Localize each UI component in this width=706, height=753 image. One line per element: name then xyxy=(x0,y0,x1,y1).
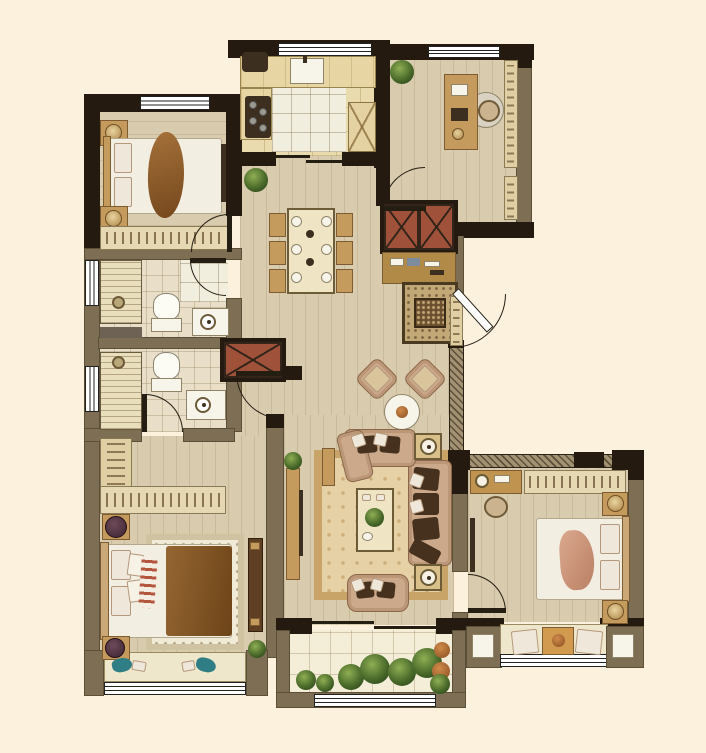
wall-study-right xyxy=(516,44,532,236)
dining-chair-4 xyxy=(336,213,353,237)
bay2-teapot xyxy=(552,634,565,647)
bed1-headboard xyxy=(103,136,111,216)
console-item-1 xyxy=(390,258,404,266)
shower-upper-drain xyxy=(112,296,125,309)
cabinet-living-corner xyxy=(322,448,335,486)
wall-balcony-right xyxy=(452,630,466,696)
bathmat-upper xyxy=(100,327,142,338)
window-study-top xyxy=(428,46,500,58)
bay2-pillow-1 xyxy=(511,629,539,656)
bay2-pillow-2 xyxy=(575,629,603,656)
bed2-pillow-2 xyxy=(600,560,620,590)
plant-master xyxy=(248,640,266,658)
slider-balcony-leaf-2 xyxy=(374,626,436,629)
bench-knob-b xyxy=(250,618,260,626)
bay-master-left-block xyxy=(84,650,104,696)
tv-panel-bedroom2 xyxy=(470,518,475,572)
coffee-item-b xyxy=(376,494,385,501)
coffee-dish xyxy=(362,532,373,541)
desk-paper xyxy=(451,84,468,96)
toilet-lower-bowl xyxy=(153,352,180,380)
bed2-headboard xyxy=(622,516,630,602)
place-setting-6 xyxy=(321,272,332,283)
dining-centerpiece-a xyxy=(306,230,314,238)
bookshelf-study-2 xyxy=(504,176,518,220)
place-setting-3 xyxy=(291,244,302,255)
desk-lamp xyxy=(452,128,464,140)
bed1-pillow-a xyxy=(114,143,132,173)
side-lamp-bottom-dot xyxy=(427,576,431,580)
study-chair xyxy=(478,100,500,122)
wall-left-dark xyxy=(84,94,100,250)
wall-kitchen-bottom-right xyxy=(342,152,390,166)
toilet-lower-tank xyxy=(151,378,182,392)
bay-master-window xyxy=(104,682,246,695)
plant-study xyxy=(390,60,414,84)
tv-cabinet-living xyxy=(286,468,300,580)
window-bath-upper-left xyxy=(85,260,99,306)
shower-lower-drain xyxy=(112,356,125,369)
window-bath-lower-left xyxy=(85,366,99,412)
console-item-2 xyxy=(407,258,420,266)
kitchen-sink xyxy=(290,58,324,84)
plant-corridor xyxy=(284,452,302,470)
bookshelf-study xyxy=(504,60,518,168)
bay2-window xyxy=(500,654,608,667)
wardrobe-master-side xyxy=(100,438,132,488)
dining-chair-1 xyxy=(269,213,286,237)
slider-kitchen-leaf-2 xyxy=(306,160,344,163)
nightstand-bed2-a-top xyxy=(607,495,624,512)
wall-study-step xyxy=(458,222,534,238)
wall-bath-mid xyxy=(98,337,230,349)
coffee-item-a xyxy=(362,494,371,501)
wall-bedroom2-top-dark-mid xyxy=(574,452,604,468)
dresser-items xyxy=(494,475,510,483)
nightstand-bed2-b-top xyxy=(607,603,624,620)
dining-chair-2 xyxy=(269,241,286,265)
dresser-lamp xyxy=(475,474,489,488)
toilet-upper-bowl xyxy=(153,293,180,321)
bed2-pillow-1 xyxy=(600,524,620,554)
console-item-4 xyxy=(430,270,444,275)
side-table-decor xyxy=(396,406,408,418)
kitchen-faucet xyxy=(303,55,307,63)
sofa-top-pillow-2 xyxy=(373,432,388,447)
wall-bedroom2-top-hatch xyxy=(462,454,630,468)
slider-kitchen-leaf-1 xyxy=(274,155,310,158)
master-quilt xyxy=(166,546,232,636)
stove-burner-4 xyxy=(259,124,267,132)
entry-rug-motif xyxy=(414,298,446,328)
place-setting-5 xyxy=(291,272,302,283)
console-item-3 xyxy=(424,261,440,267)
wall-bedroom2-right-dark xyxy=(628,450,644,480)
slider-balcony-leaf-1 xyxy=(312,621,374,624)
balcony-plant-1 xyxy=(296,670,316,690)
balcony-plant-7 xyxy=(430,674,450,694)
window-kitchen-top xyxy=(278,43,372,56)
desk-laptop xyxy=(451,108,468,121)
tv-panel-bedroom1 xyxy=(221,144,226,202)
kitchen-appliance xyxy=(242,52,268,72)
vanity-upper-tap xyxy=(207,320,211,324)
bed1-pillow-b xyxy=(114,177,132,207)
wall-kitchen-right xyxy=(374,40,390,168)
nightstand-master-b-top xyxy=(105,638,125,658)
lamp-bed1-b xyxy=(105,210,122,227)
place-setting-1 xyxy=(291,216,302,227)
coffee-plant xyxy=(365,508,384,527)
vanity-lower-tap xyxy=(202,403,206,407)
wardrobe-bedroom2 xyxy=(524,470,626,494)
nightstand-master-a-top xyxy=(105,516,127,538)
place-setting-4 xyxy=(321,244,332,255)
stove-burner-2 xyxy=(259,108,267,116)
wall-bedroom2-left-dark xyxy=(452,468,468,494)
window-balcony xyxy=(314,694,436,707)
balcony-plant-4 xyxy=(360,654,390,684)
stove-burner-1 xyxy=(249,101,257,109)
bay2-right-window xyxy=(612,634,634,658)
balcony-pot-2 xyxy=(434,642,450,658)
entry-console xyxy=(382,252,456,284)
wall-balcony-left xyxy=(276,630,290,696)
side-lamp-top-dot xyxy=(427,445,431,449)
tv-living xyxy=(299,490,303,556)
dining-chair-6 xyxy=(336,269,353,293)
window-bedroom1-top xyxy=(140,96,210,110)
wall-study-right-top xyxy=(516,44,532,68)
kitchen-island-tiles xyxy=(272,88,346,152)
floor-plan xyxy=(0,0,706,753)
balcony-plant-2 xyxy=(316,674,334,692)
plant-hall xyxy=(244,168,268,192)
wall-kitchen-bottom-left xyxy=(228,152,276,166)
dining-chair-3 xyxy=(269,269,286,293)
kitchen-corner-unit xyxy=(348,102,376,152)
bay2-left-window xyxy=(472,634,494,658)
wall-master-top-right xyxy=(183,428,235,442)
toilet-upper-tank xyxy=(151,318,182,332)
dining-centerpiece-b xyxy=(306,258,314,266)
wardrobe-master xyxy=(100,486,226,514)
stool-bedroom2 xyxy=(484,496,508,518)
master-headboard xyxy=(100,542,109,640)
wall-hatch-entry xyxy=(449,346,464,456)
place-setting-2 xyxy=(321,216,332,227)
shower-upper xyxy=(100,260,142,324)
stove-burner-3 xyxy=(249,117,257,125)
bench-knob-a xyxy=(250,542,260,550)
dining-chair-5 xyxy=(336,241,353,265)
